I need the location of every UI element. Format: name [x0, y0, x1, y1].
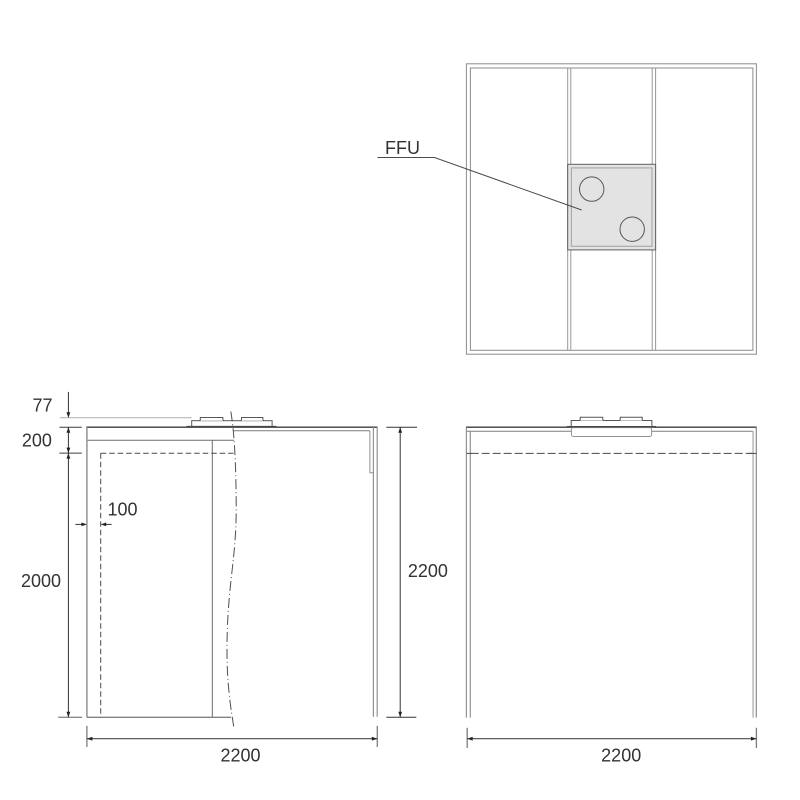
svg-text:200: 200 [22, 430, 52, 450]
svg-text:100: 100 [108, 500, 138, 520]
svg-text:FFU: FFU [385, 138, 420, 158]
svg-text:77: 77 [32, 395, 52, 415]
svg-text:2200: 2200 [601, 745, 641, 765]
svg-text:2000: 2000 [21, 571, 61, 591]
svg-text:2200: 2200 [408, 561, 448, 581]
svg-text:2200: 2200 [220, 746, 260, 766]
